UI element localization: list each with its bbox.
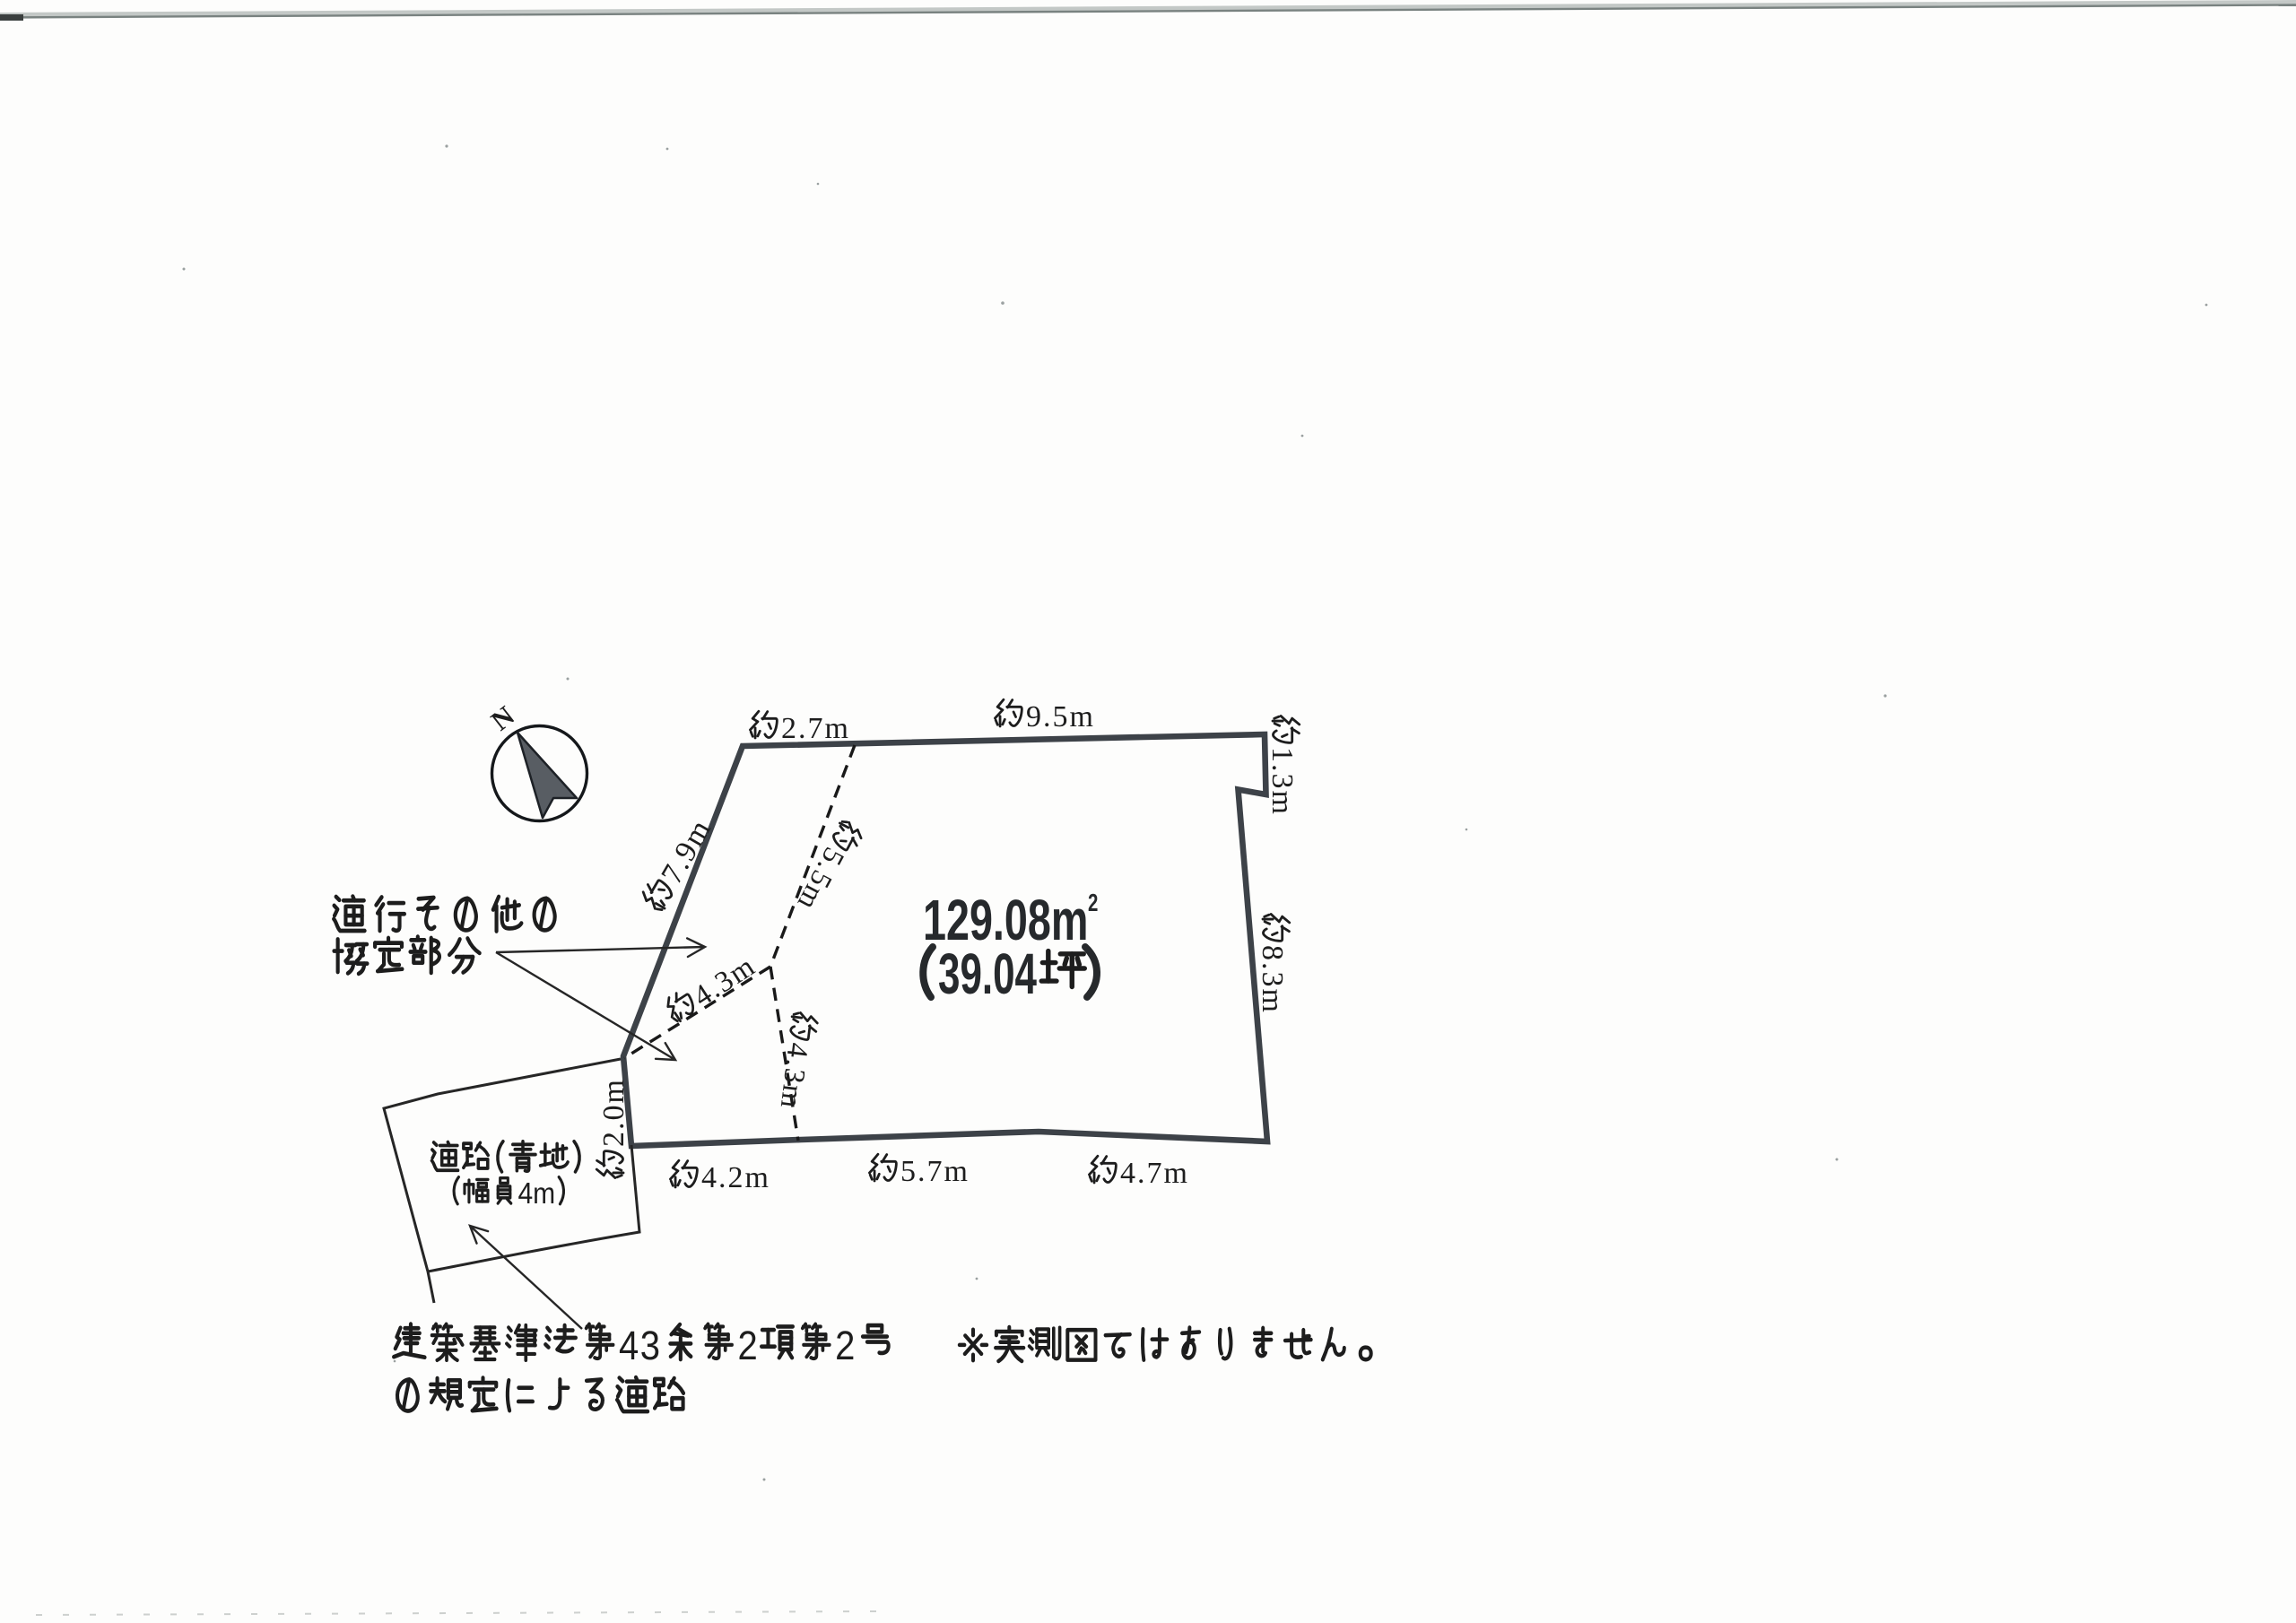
svg-text:1.3m: 1.3m bbox=[1265, 747, 1299, 816]
svg-text:7.9m: 7.9m bbox=[655, 813, 718, 890]
svg-text:5.5m: 5.5m bbox=[790, 842, 850, 916]
svg-text:39.04: 39.04 bbox=[938, 942, 1037, 1006]
svg-text:43: 43 bbox=[619, 1324, 661, 1369]
svg-text:2.0m: 2.0m bbox=[597, 1078, 631, 1147]
svg-text:2.7m: 2.7m bbox=[781, 712, 850, 745]
svg-text:2: 2 bbox=[738, 1324, 760, 1369]
svg-text:4.3m: 4.3m bbox=[774, 1041, 814, 1112]
svg-text:4.7m: 4.7m bbox=[1120, 1157, 1189, 1190]
svg-text:5.7m: 5.7m bbox=[900, 1155, 970, 1188]
svg-text:2: 2 bbox=[835, 1324, 857, 1369]
svg-text:2: 2 bbox=[1088, 890, 1098, 917]
svg-text:4m: 4m bbox=[518, 1176, 556, 1211]
svg-text:4.2m: 4.2m bbox=[701, 1161, 770, 1194]
svg-text:9.5m: 9.5m bbox=[1026, 700, 1095, 733]
svg-text:8.3m: 8.3m bbox=[1256, 945, 1289, 1014]
svg-text:4.3m: 4.3m bbox=[688, 950, 761, 1013]
